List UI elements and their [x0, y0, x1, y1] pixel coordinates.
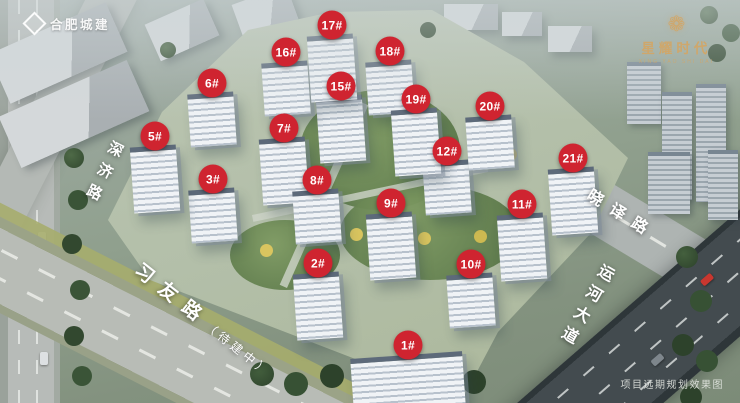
building-marker-20: 20# — [476, 92, 505, 121]
building-marker-10: 10# — [457, 250, 486, 279]
roadside-trees — [64, 148, 84, 168]
car — [700, 273, 714, 287]
building-marker-7: 7# — [270, 114, 299, 143]
building-marker-15: 15# — [327, 72, 356, 101]
residential-building-3 — [188, 187, 238, 243]
diamond-logo-icon — [22, 11, 46, 35]
building-marker-11: 11# — [508, 190, 537, 219]
project-logo-tagline: XING YAO SHI DAI — [639, 59, 714, 65]
developer-logo: 合肥城建 — [26, 14, 110, 33]
building-marker-21: 21# — [559, 144, 588, 173]
building-marker-8: 8# — [303, 166, 332, 195]
building-marker-19: 19# — [402, 85, 431, 114]
medallion-logo-icon: ❁ — [639, 14, 714, 36]
building-marker-17: 17# — [318, 11, 347, 40]
residential-building-19 — [391, 107, 441, 176]
project-logo: ❁ 星耀时代 XING YAO SHI DAI — [639, 14, 714, 65]
building-marker-3: 3# — [199, 165, 228, 194]
residential-building-11 — [497, 212, 547, 281]
building-marker-12: 12# — [433, 137, 462, 166]
city-building — [708, 150, 738, 220]
city-building — [502, 12, 542, 36]
building-marker-16: 16# — [272, 38, 301, 67]
residential-building-10 — [446, 272, 496, 328]
trees — [160, 42, 176, 58]
residential-building-8 — [292, 188, 342, 244]
residential-building-5 — [130, 144, 180, 213]
building-marker-6: 6# — [198, 69, 227, 98]
car — [650, 353, 664, 367]
residential-building-6 — [187, 91, 237, 147]
city-building — [548, 26, 592, 52]
project-logo-text: 星耀时代 — [639, 37, 714, 57]
render-disclaimer: 项目远期规划效果图 — [621, 376, 725, 391]
building-marker-1: 1# — [394, 331, 423, 360]
developer-logo-text: 合肥城建 — [50, 14, 110, 33]
car — [40, 352, 48, 365]
residential-building-20 — [465, 114, 515, 170]
residential-building-2 — [293, 271, 343, 340]
building-marker-2: 2# — [304, 249, 333, 278]
residential-building-16 — [261, 60, 311, 116]
building-marker-9: 9# — [377, 189, 406, 218]
city-building — [145, 0, 220, 61]
building-marker-18: 18# — [376, 37, 405, 66]
city-building — [648, 152, 690, 214]
residential-building-15 — [316, 94, 366, 163]
aerial-masterplan-render: 1#2#3#5#6#7#8#9#10#11#12#15#16#17#18#19#… — [0, 0, 740, 403]
city-building — [627, 62, 661, 124]
residential-building-9 — [366, 211, 416, 280]
building-marker-5: 5# — [141, 122, 170, 151]
trees — [676, 246, 698, 268]
